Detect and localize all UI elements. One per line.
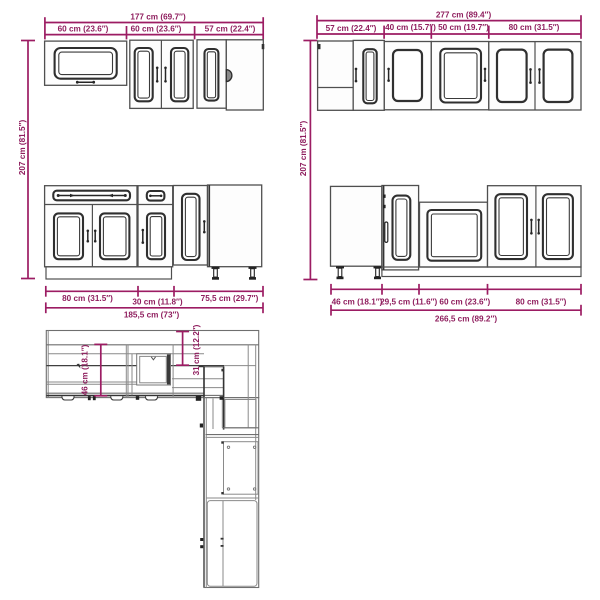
- svg-text:207 cm (81.5″): 207 cm (81.5″): [299, 121, 308, 177]
- svg-text:60 cm (23.6″): 60 cm (23.6″): [439, 297, 490, 306]
- svg-text:207 cm (81.5″): 207 cm (81.5″): [18, 120, 27, 176]
- svg-text:57 cm (22.4″): 57 cm (22.4″): [326, 24, 377, 33]
- svg-text:277 cm (89.4″): 277 cm (89.4″): [436, 11, 492, 20]
- svg-text:266,5 cm (89.2″): 266,5 cm (89.2″): [435, 314, 497, 323]
- svg-text:185,5 cm (73″): 185,5 cm (73″): [124, 311, 180, 320]
- svg-text:60 cm (23.6″): 60 cm (23.6″): [131, 24, 182, 33]
- svg-text:80 cm (31.5″): 80 cm (31.5″): [516, 297, 567, 306]
- svg-text:80 cm (31.5″): 80 cm (31.5″): [62, 294, 113, 303]
- svg-text:177 cm (69.7″): 177 cm (69.7″): [130, 13, 186, 22]
- svg-text:46 cm (18.1″): 46 cm (18.1″): [81, 344, 90, 395]
- svg-text:31 cm (12.2″): 31 cm (12.2″): [192, 324, 201, 375]
- svg-text:60 cm (23.6″): 60 cm (23.6″): [58, 24, 109, 33]
- svg-text:80 cm (31.5″): 80 cm (31.5″): [509, 23, 560, 32]
- svg-text:40 cm (15.7″): 40 cm (15.7″): [385, 23, 436, 32]
- svg-text:30 cm (11.8″): 30 cm (11.8″): [132, 297, 183, 306]
- svg-text:57 cm (22.4″): 57 cm (22.4″): [205, 24, 256, 33]
- svg-text:75,5 cm (29.7″): 75,5 cm (29.7″): [201, 294, 259, 303]
- svg-text:46 cm (18.1″): 46 cm (18.1″): [332, 297, 383, 306]
- svg-text:50 cm (19.7″): 50 cm (19.7″): [438, 23, 489, 32]
- svg-text:29,5 cm (11.6″): 29,5 cm (11.6″): [380, 297, 437, 306]
